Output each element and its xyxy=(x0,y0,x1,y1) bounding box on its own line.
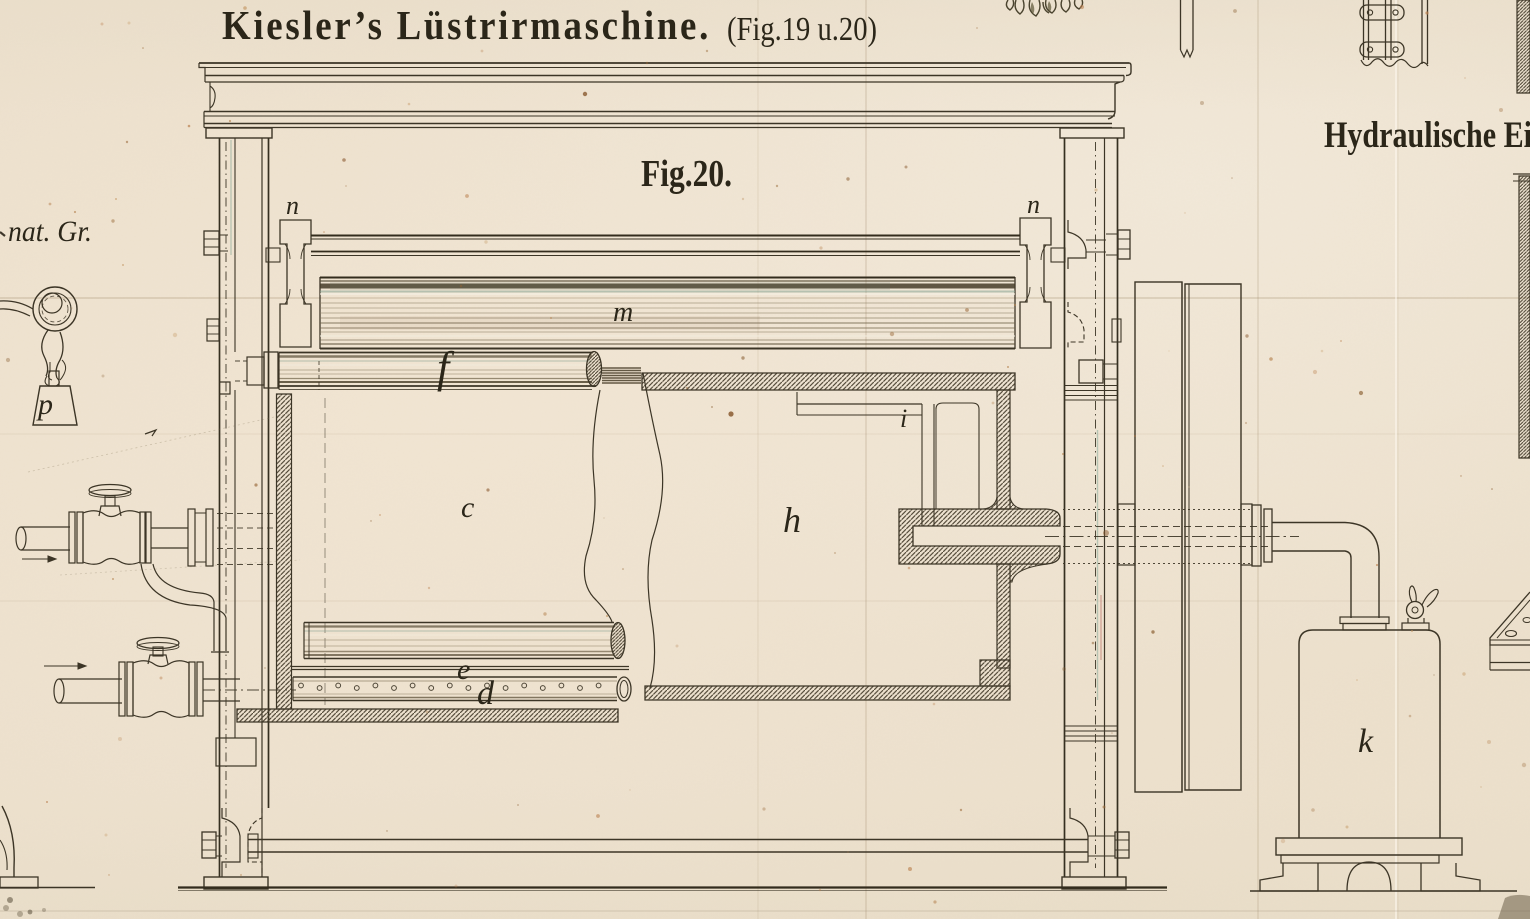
svg-text:Kiesler’s Lüstrirmaschine.: Kiesler’s Lüstrirmaschine. xyxy=(222,2,711,48)
svg-text:c: c xyxy=(461,491,474,524)
svg-text:e: e xyxy=(457,653,470,686)
svg-text:m: m xyxy=(613,297,633,328)
svg-text:d: d xyxy=(477,675,495,712)
svg-text:Fig.20.: Fig.20. xyxy=(641,153,732,195)
svg-text:h: h xyxy=(783,500,801,540)
svg-text:i: i xyxy=(900,404,907,433)
svg-text:k: k xyxy=(1358,723,1374,760)
svg-text:n: n xyxy=(286,191,299,220)
svg-text:(Fig.19 u.20): (Fig.19 u.20) xyxy=(727,11,877,48)
svg-text:n: n xyxy=(1027,190,1040,219)
svg-text:Hydraulische Ei: Hydraulische Ei xyxy=(1324,115,1530,156)
svg-text:nat. Gr.: nat. Gr. xyxy=(8,215,92,248)
svg-text:p: p xyxy=(36,388,53,421)
